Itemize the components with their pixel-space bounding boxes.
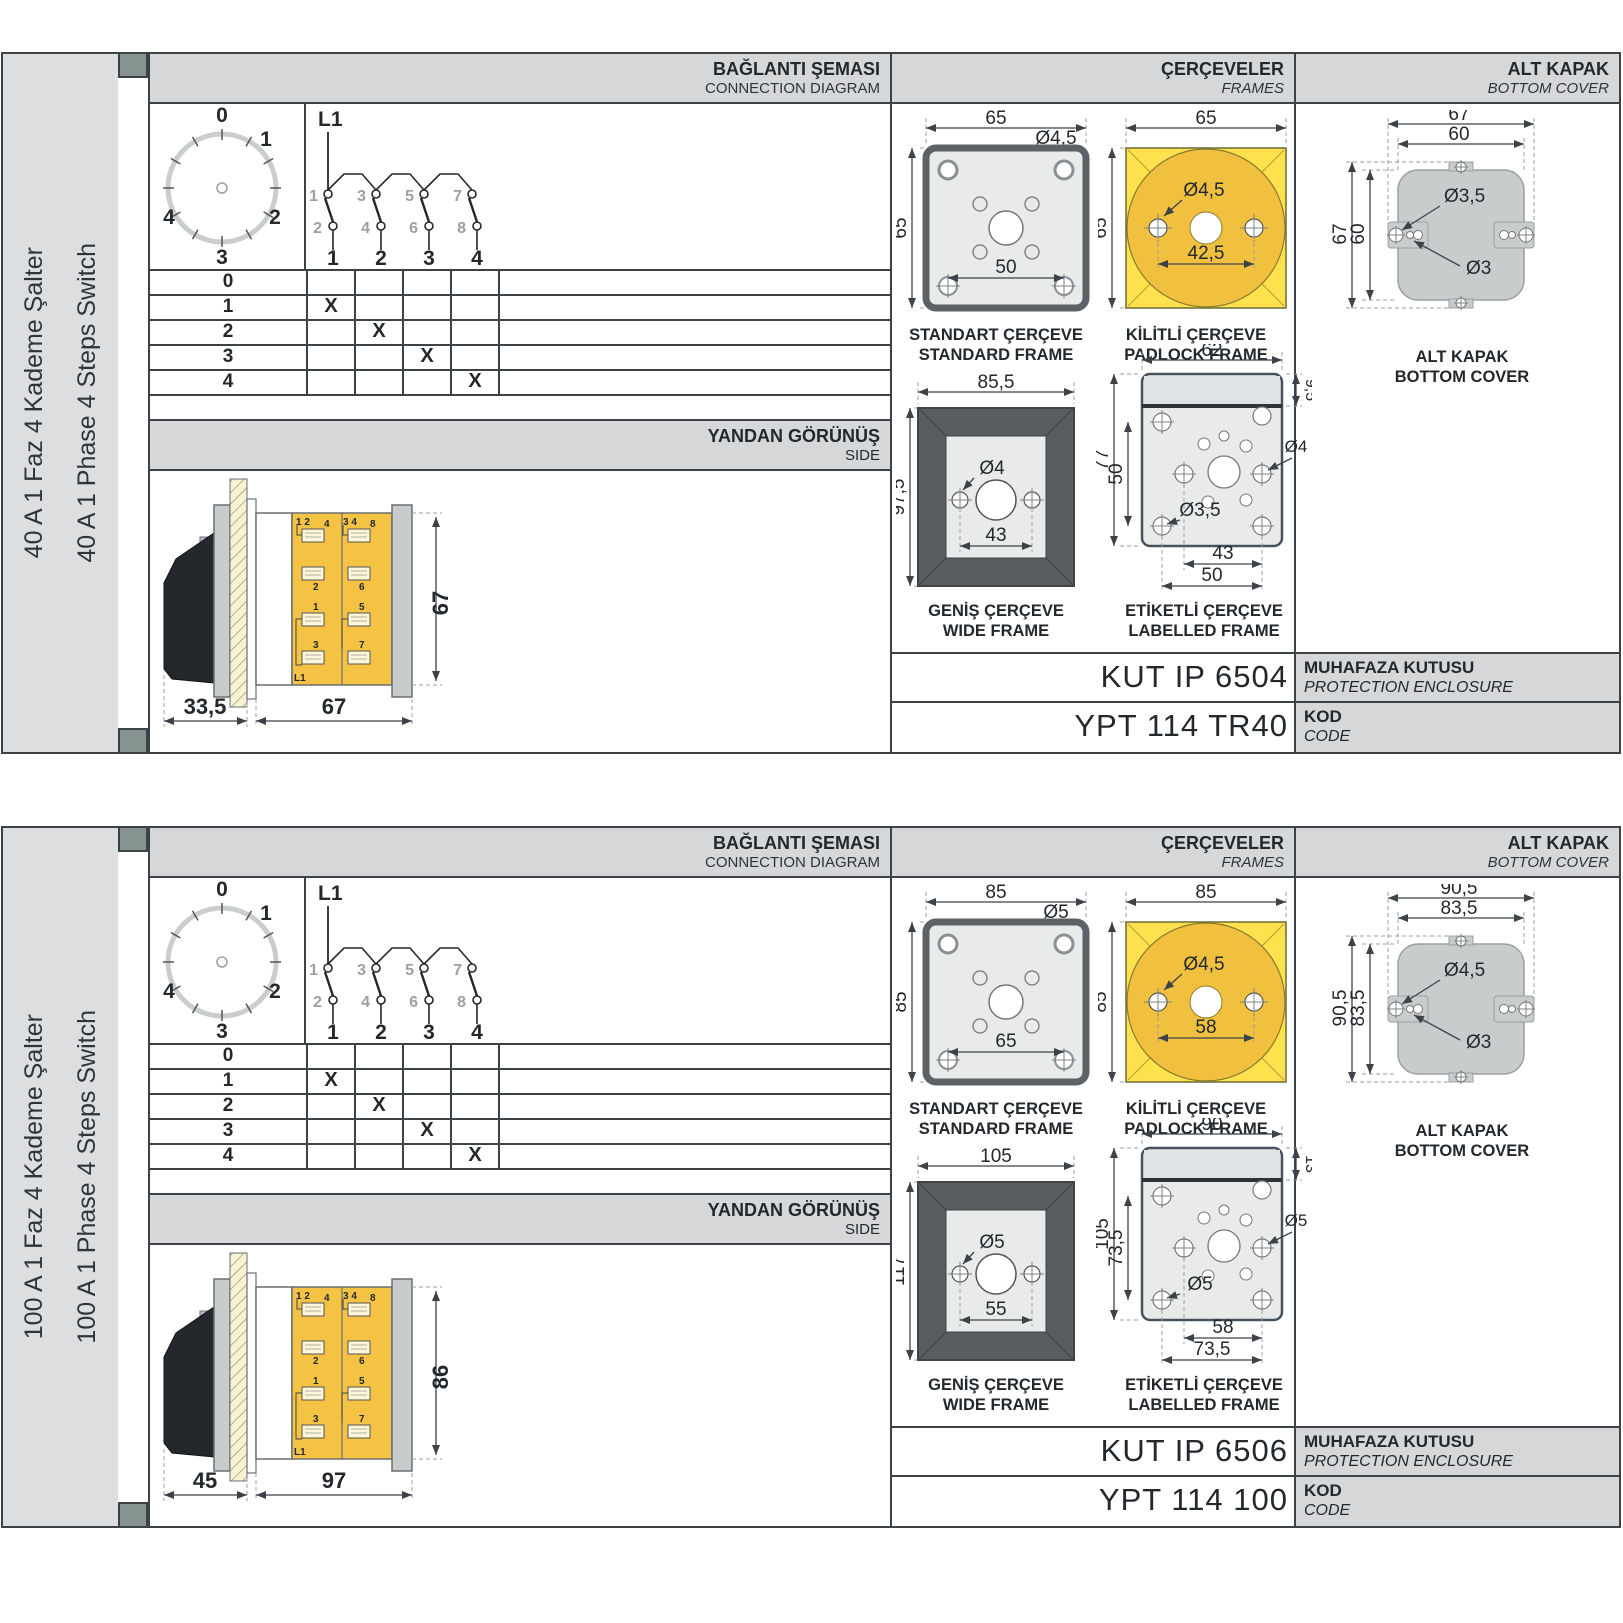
switch-pole-4: 7 8 4 <box>453 188 483 267</box>
svg-text:3: 3 <box>423 1021 435 1041</box>
table-row: 2X <box>150 321 890 346</box>
svg-text:8: 8 <box>370 1293 376 1304</box>
table-row: 4X <box>150 1145 890 1170</box>
svg-text:83,5: 83,5 <box>1348 990 1369 1027</box>
svg-text:Ø5: Ø5 <box>1187 1274 1212 1295</box>
svg-text:85: 85 <box>1195 882 1216 903</box>
svg-text:7: 7 <box>453 962 462 979</box>
product-label-panel: 100 A 1 Faz 4 Kademe Şalter 100 A 1 Phas… <box>1 826 120 1528</box>
dial-center <box>217 183 227 193</box>
enclosure-code: KUT IP 6506 <box>892 1428 1294 1477</box>
shaft-hole <box>989 985 1023 1019</box>
svg-text:50: 50 <box>995 257 1016 278</box>
svg-text:83,5: 83,5 <box>1441 898 1478 919</box>
datasheet-grid: BAĞLANTI ŞEMASI CONNECTION DIAGRAM ÇERÇE… <box>148 52 1621 754</box>
table-row: 0 <box>150 1045 890 1070</box>
svg-text:6: 6 <box>409 994 418 1011</box>
svg-text:Ø3,5: Ø3,5 <box>1444 186 1485 207</box>
svg-text:50: 50 <box>1106 463 1127 484</box>
svg-text:33,5: 33,5 <box>184 694 227 719</box>
svg-text:3: 3 <box>423 247 435 267</box>
labelled-frame-figure: 90 13 105 73,5 <box>1096 1118 1312 1415</box>
feed-label: L1 <box>318 108 343 131</box>
svg-text:8: 8 <box>457 220 466 237</box>
side-view-drawing: 1 2 4 2 1 3 L1 3 4 8 6 5 7 86 45 <box>150 1245 890 1526</box>
svg-text:65: 65 <box>896 217 911 238</box>
product-code: YPT 114 100 <box>892 1477 1294 1526</box>
bottom-cover-figure: 67 60 67 60 <box>1326 110 1598 387</box>
svg-text:86: 86 <box>428 1365 453 1389</box>
dial-pos-3: 3 <box>216 246 228 267</box>
front-plate <box>214 505 230 697</box>
svg-text:67: 67 <box>322 694 346 719</box>
svg-text:Ø3,5: Ø3,5 <box>1179 500 1220 521</box>
padlock-frame-figure: 85 85 Ø4,5 58 KİLİTLİ ÇERÇEVE PADLOCK FR… <box>1098 882 1294 1139</box>
dial-svg: 0 1 2 3 4 <box>150 104 304 267</box>
switch-pole-1: 1 2 1 <box>309 188 339 267</box>
bus-link <box>328 174 472 190</box>
dimension-height: 67 <box>412 513 453 685</box>
svg-text:2: 2 <box>375 247 387 267</box>
header-frames-tr: ÇERÇEVELER <box>892 58 1284 80</box>
svg-text:105: 105 <box>980 1146 1012 1167</box>
svg-text:85,5: 85,5 <box>978 372 1015 393</box>
shaft-hole <box>1190 986 1222 1018</box>
header-cover-en: BOTTOM COVER <box>1296 80 1609 98</box>
switch-pole-1: 1 2 1 <box>309 962 339 1041</box>
enclosure-code: KUT IP 6504 <box>892 654 1294 703</box>
svg-text:67: 67 <box>428 591 453 615</box>
product-section-40a: 40 A 1 Faz 4 Kademe Şalter 40 A 1 Phase … <box>1 52 1621 754</box>
switch-pole-3: 5 6 3 <box>405 962 435 1041</box>
svg-text:117: 117 <box>896 1256 909 1286</box>
dial-center <box>217 957 227 967</box>
mounting-panel <box>230 1253 247 1481</box>
svg-text:Ø3: Ø3 <box>1466 1032 1491 1053</box>
svg-text:1 2: 1 2 <box>296 1291 310 1302</box>
svg-text:73,5: 73,5 <box>1194 1339 1231 1360</box>
circuit-drawing: L1 1 2 1 <box>306 104 890 269</box>
svg-text:2: 2 <box>313 582 319 593</box>
product-name-en: 100 A 1 Phase 4 Steps Switch <box>73 1010 102 1344</box>
svg-text:8: 8 <box>370 519 376 530</box>
svg-text:Ø4,5: Ø4,5 <box>1444 960 1485 981</box>
table-row: 2X <box>150 1095 890 1120</box>
circuit-drawing: L1 1 2 1 <box>306 878 890 1043</box>
wide-frame-figure: 85,5 97,5 Ø4 43 GENİŞ ÇERÇEVE WIDE FRAME <box>896 372 1096 641</box>
svg-text:5: 5 <box>359 602 365 613</box>
dial-pos-0: 0 <box>216 104 228 127</box>
switching-table: 0 1X 2X 3X 4X <box>150 271 890 396</box>
product-name-tr: 40 A 1 Faz 4 Kademe Şalter <box>20 247 49 558</box>
table-row: 3X <box>150 346 890 371</box>
switching-table: 0 1X 2X 3X 4X <box>150 1045 890 1170</box>
side-view-drawing: 1 2 4 2 1 3 L1 3 4 8 6 5 7 67 33,5 <box>150 471 890 752</box>
dial-svg: 0 1 2 3 4 <box>150 878 304 1041</box>
header-frames-en: FRAMES <box>892 80 1284 98</box>
svg-text:L1: L1 <box>294 1447 306 1458</box>
svg-text:1: 1 <box>309 188 318 205</box>
shaft-hole <box>976 480 1016 520</box>
svg-text:0: 0 <box>216 878 228 901</box>
table-row: 0 <box>150 271 890 296</box>
header-cover: ALT KAPAK BOTTOM COVER <box>1296 828 1619 878</box>
datasheet-grid: BAĞLANTI ŞEMASI CONNECTION DIAGRAM ÇERÇE… <box>148 826 1621 1528</box>
label-band <box>1144 1150 1280 1178</box>
svg-text:Ø4,5: Ø4,5 <box>1183 954 1224 975</box>
header-connection: BAĞLANTI ŞEMASI CONNECTION DIAGRAM <box>150 828 890 878</box>
svg-text:1: 1 <box>313 602 319 613</box>
svg-text:85: 85 <box>985 882 1006 903</box>
svg-text:1: 1 <box>260 902 272 925</box>
header-connection: BAĞLANTI ŞEMASI CONNECTION DIAGRAM <box>150 54 890 104</box>
svg-text:45: 45 <box>193 1468 217 1493</box>
svg-text:43: 43 <box>985 525 1006 546</box>
svg-text:5: 5 <box>405 962 414 979</box>
svg-text:Ø3: Ø3 <box>1466 258 1491 279</box>
standard-frame-figure: 85 Ø5 85 65 STANDART ÇERÇEVE ST <box>896 882 1096 1139</box>
dial-pos-2: 2 <box>269 206 281 229</box>
svg-text:13: 13 <box>1302 1155 1312 1173</box>
switch-pole-2: 3 4 2 <box>357 962 387 1041</box>
padlock-frame-figure: 65 65 Ø4,5 42,5 KİLİTLİ ÇERÇEVE PADLOCK … <box>1098 108 1294 365</box>
switch-handle <box>164 1307 214 1457</box>
header-frames: ÇERÇEVELER FRAMES <box>892 54 1294 104</box>
header-connection-tr: BAĞLANTI ŞEMASI <box>150 58 880 80</box>
gasket-plate <box>247 499 256 699</box>
switch-pole-3: 5 6 3 <box>405 188 435 267</box>
labelled-frame-figure: 62 9,5 77 50 <box>1096 344 1312 641</box>
connection-diagram: 0 1 2 3 4 L1 1 <box>150 878 890 1045</box>
svg-text:1 2: 1 2 <box>296 517 310 528</box>
table-row: 4X <box>150 371 890 396</box>
dial-pos-4: 4 <box>163 206 175 229</box>
product-label-panel: 40 A 1 Faz 4 Kademe Şalter 40 A 1 Phase … <box>1 52 120 754</box>
shaft-hole <box>1190 212 1222 244</box>
product-code-label: KOD CODE <box>1296 1477 1619 1526</box>
product-code-label: KOD CODE <box>1296 703 1619 752</box>
enclosure-code-label: MUHAFAZA KUTUSU PROTECTION ENCLOSURE <box>1296 1428 1619 1477</box>
svg-text:3 4: 3 4 <box>343 1291 357 1302</box>
svg-text:2: 2 <box>375 1021 387 1041</box>
product-name-tr: 100 A 1 Faz 4 Kademe Şalter <box>20 1014 49 1339</box>
svg-text:3: 3 <box>357 962 366 979</box>
svg-text:4: 4 <box>163 980 175 1003</box>
header-cover-tr: ALT KAPAK <box>1296 58 1609 80</box>
svg-text:Ø4,5: Ø4,5 <box>1183 180 1224 201</box>
circuit-svg: L1 1 2 1 <box>306 104 888 267</box>
dimension-body: 67 <box>256 694 412 727</box>
svg-text:L1: L1 <box>294 673 306 684</box>
header-cover: ALT KAPAK BOTTOM COVER <box>1296 54 1619 104</box>
dimension-body: 97 <box>256 1468 412 1501</box>
switch-pole-4: 7 8 4 <box>453 962 483 1041</box>
svg-text:90: 90 <box>1201 1118 1222 1135</box>
svg-text:60: 60 <box>1348 223 1369 244</box>
svg-text:58: 58 <box>1195 1017 1216 1038</box>
svg-text:3: 3 <box>357 188 366 205</box>
svg-text:8: 8 <box>457 994 466 1011</box>
standard-frame-figure: 65 Ø4,5 65 50 STANDART ÇERÇEVE <box>896 108 1096 365</box>
svg-text:3 4: 3 4 <box>343 517 357 528</box>
svg-text:Ø4: Ø4 <box>1285 437 1308 456</box>
bus-link <box>328 948 472 964</box>
mounting-panel <box>230 479 247 707</box>
spine-strip <box>118 826 148 1528</box>
svg-text:58: 58 <box>1212 1317 1233 1338</box>
dimension-height: 86 <box>412 1287 453 1459</box>
panel-divider <box>890 828 892 1526</box>
svg-text:3: 3 <box>313 1414 319 1425</box>
svg-text:42,5: 42,5 <box>1188 243 1225 264</box>
switch-handle <box>164 533 214 683</box>
svg-text:4: 4 <box>471 1021 483 1041</box>
svg-text:65: 65 <box>995 1031 1016 1052</box>
spine-marker-bottom <box>118 1502 148 1528</box>
gasket-plate <box>247 1273 256 1473</box>
spine-strip <box>118 52 148 754</box>
svg-text:Ø4: Ø4 <box>979 458 1005 479</box>
svg-text:3: 3 <box>216 1020 228 1041</box>
svg-text:Ø5: Ø5 <box>979 1232 1004 1253</box>
svg-text:4: 4 <box>361 994 370 1011</box>
svg-text:9,5: 9,5 <box>1302 379 1312 401</box>
svg-text:4: 4 <box>471 247 483 267</box>
svg-text:62: 62 <box>1201 344 1222 361</box>
switch-pole-2: 3 4 2 <box>357 188 387 267</box>
circuit-svg: L1 1 2 1 <box>306 878 888 1041</box>
svg-text:7: 7 <box>359 640 365 651</box>
svg-text:2: 2 <box>269 980 281 1003</box>
svg-text:3: 3 <box>313 640 319 651</box>
table-row: 1X <box>150 1070 890 1095</box>
table-row: 3X <box>150 1120 890 1145</box>
label-band <box>1144 376 1280 404</box>
svg-text:97: 97 <box>322 1468 346 1493</box>
end-cap <box>392 1279 412 1471</box>
wide-frame-figure: 105 117 Ø5 55 GENİŞ ÇERÇEVE WIDE FRAME <box>896 1146 1096 1415</box>
end-cap <box>392 505 412 697</box>
svg-text:65: 65 <box>985 108 1006 129</box>
svg-text:73,5: 73,5 <box>1106 1230 1127 1267</box>
shaft-hole <box>989 211 1023 245</box>
svg-text:85: 85 <box>1098 991 1111 1012</box>
side-view-header: YANDAN GÖRÜNÜŞ SIDE <box>150 1193 890 1245</box>
front-plate <box>214 1279 230 1471</box>
svg-text:2: 2 <box>313 1356 319 1367</box>
spine-marker-top <box>118 826 148 852</box>
enclosure-code-label: MUHAFAZA KUTUSU PROTECTION ENCLOSURE <box>1296 654 1619 703</box>
dial-pos-1: 1 <box>260 128 272 151</box>
svg-text:7: 7 <box>359 1414 365 1425</box>
svg-text:97,5: 97,5 <box>896 479 909 516</box>
svg-text:43: 43 <box>1212 543 1233 564</box>
svg-text:65: 65 <box>1195 108 1216 129</box>
product-section-100a: 100 A 1 Faz 4 Kademe Şalter 100 A 1 Phas… <box>1 826 1621 1528</box>
svg-text:1: 1 <box>309 962 318 979</box>
shaft-hole <box>976 1254 1016 1294</box>
svg-text:1: 1 <box>313 1376 319 1387</box>
spine-marker-top <box>118 52 148 78</box>
svg-text:5: 5 <box>359 1376 365 1387</box>
feed-label: L1 <box>318 882 343 905</box>
svg-text:67: 67 <box>1448 110 1469 125</box>
svg-text:50: 50 <box>1201 565 1222 586</box>
switch-neck <box>256 1287 292 1459</box>
svg-text:90,5: 90,5 <box>1441 884 1478 899</box>
header-frames: ÇERÇEVELER FRAMES <box>892 828 1294 878</box>
svg-text:6: 6 <box>359 582 365 593</box>
svg-text:4: 4 <box>324 1293 330 1304</box>
svg-text:85: 85 <box>896 991 911 1012</box>
table-row: 1X <box>150 296 890 321</box>
svg-text:4: 4 <box>324 519 330 530</box>
svg-text:1: 1 <box>327 1021 339 1041</box>
switch-neck <box>256 513 292 685</box>
svg-text:4: 4 <box>361 220 370 237</box>
svg-text:2: 2 <box>313 994 322 1011</box>
product-name-en: 40 A 1 Phase 4 Steps Switch <box>73 243 102 563</box>
catalog-page: { "colors":{"header_bg":"#d5d7d9","sideb… <box>0 0 1623 1623</box>
svg-text:5: 5 <box>405 188 414 205</box>
svg-text:1: 1 <box>327 247 339 267</box>
svg-text:7: 7 <box>453 188 462 205</box>
svg-text:6: 6 <box>359 1356 365 1367</box>
header-connection-en: CONNECTION DIAGRAM <box>150 80 880 98</box>
dial-drawing: 0 1 2 3 4 <box>150 878 306 1043</box>
connection-diagram: 0 1 2 3 4 L1 1 <box>150 104 890 271</box>
bottom-cover-figure: 90,5 83,5 90,5 83,5 <box>1326 884 1598 1161</box>
svg-text:55: 55 <box>985 1299 1006 1320</box>
svg-text:60: 60 <box>1448 124 1469 145</box>
svg-text:2: 2 <box>313 220 322 237</box>
spine-marker-bottom <box>118 728 148 754</box>
dial-drawing: 0 1 2 3 4 <box>150 104 306 269</box>
product-code: YPT 114 TR40 <box>892 703 1294 752</box>
svg-text:65: 65 <box>1098 217 1111 238</box>
side-view-header: YANDAN GÖRÜNÜŞ SIDE <box>150 419 890 471</box>
panel-divider <box>890 54 892 752</box>
svg-text:6: 6 <box>409 220 418 237</box>
svg-text:Ø5: Ø5 <box>1285 1211 1308 1230</box>
